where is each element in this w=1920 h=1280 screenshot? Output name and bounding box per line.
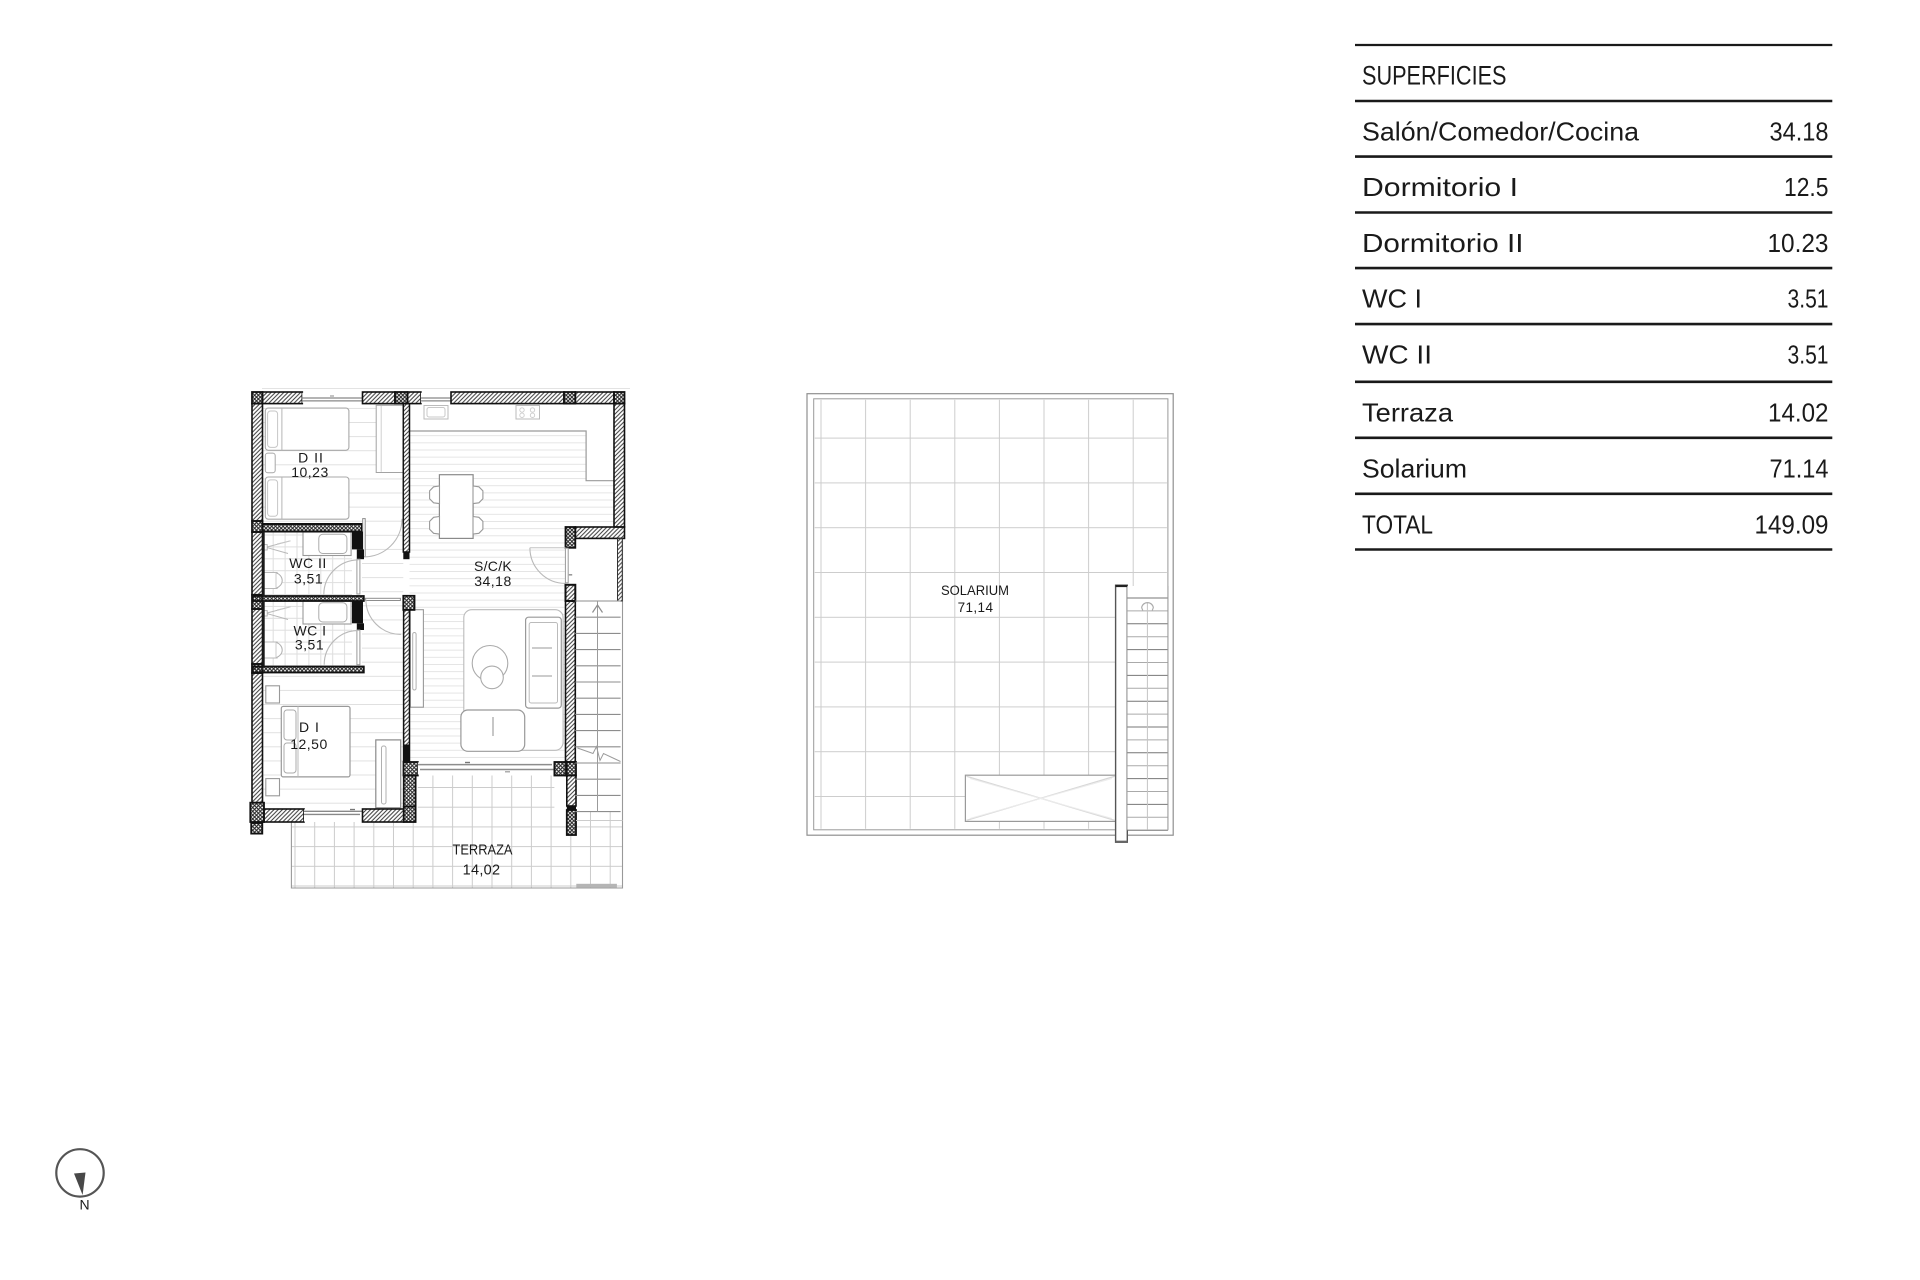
- svg-text:Solarium: Solarium: [1362, 453, 1467, 483]
- svg-text:TOTAL: TOTAL: [1362, 509, 1433, 539]
- svg-text:34.18: 34.18: [1770, 116, 1829, 146]
- svg-text:Dormitorio I: Dormitorio I: [1362, 172, 1518, 202]
- svg-text:WC II: WC II: [1362, 340, 1432, 370]
- svg-text:10,23: 10,23: [291, 464, 329, 480]
- svg-text:12,50: 12,50: [290, 736, 328, 752]
- svg-text:D I: D I: [299, 719, 320, 735]
- svg-text:SUPERFICIES: SUPERFICIES: [1362, 61, 1507, 91]
- svg-text:14,02: 14,02: [463, 863, 501, 879]
- svg-text:149.09: 149.09: [1755, 509, 1829, 539]
- svg-text:TERRAZA: TERRAZA: [453, 843, 513, 859]
- svg-text:71.14: 71.14: [1770, 453, 1829, 483]
- svg-text:SOLARIUM: SOLARIUM: [941, 583, 1009, 598]
- svg-text:3,51: 3,51: [295, 637, 324, 653]
- svg-text:S/C/K: S/C/K: [474, 558, 512, 574]
- svg-text:12.5: 12.5: [1784, 172, 1829, 202]
- svg-text:WC I: WC I: [1362, 284, 1422, 314]
- svg-text:N: N: [79, 1197, 89, 1213]
- svg-text:14.02: 14.02: [1768, 397, 1829, 427]
- svg-text:Terraza: Terraza: [1362, 397, 1454, 427]
- svg-text:3.51: 3.51: [1788, 284, 1829, 314]
- svg-text:WC II: WC II: [289, 555, 327, 571]
- svg-text:Salón/Comedor/Cocina: Salón/Comedor/Cocina: [1362, 116, 1640, 146]
- svg-text:Dormitorio II: Dormitorio II: [1362, 228, 1524, 258]
- svg-text:3.51: 3.51: [1788, 340, 1829, 370]
- svg-text:3,51: 3,51: [294, 571, 323, 587]
- svg-text:34,18: 34,18: [474, 573, 512, 589]
- svg-text:71,14: 71,14: [958, 600, 994, 615]
- svg-text:10.23: 10.23: [1768, 228, 1829, 258]
